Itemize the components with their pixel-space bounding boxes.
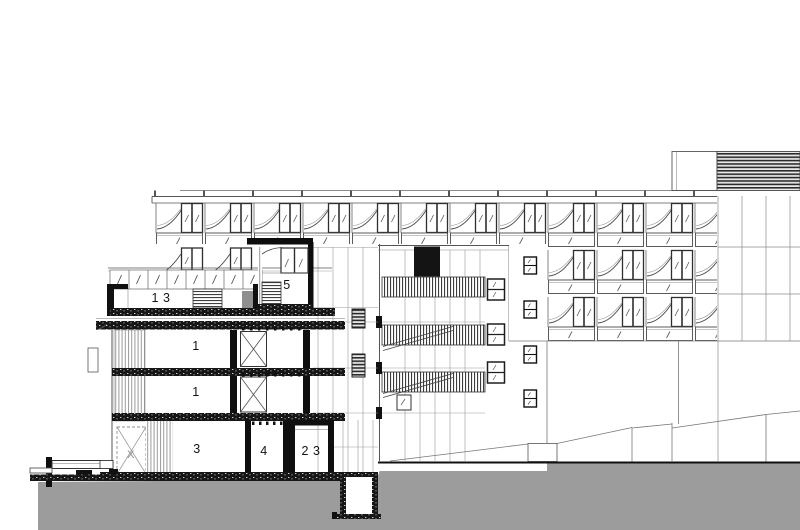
room-label-4: 4 [257,444,271,458]
room-label-23: 2 3 [295,444,327,458]
section-linework [0,0,800,530]
rooftop-louver-box [672,152,800,191]
room-label-x: X [124,448,138,462]
room-label-3: 3 [190,442,204,456]
room-label-5: 5 [280,278,294,292]
room-label-1-upper: 1 [189,339,203,353]
room-label-1-lower: 1 [189,385,203,399]
ground-line [378,462,800,464]
stair-landing-windows [488,279,505,383]
room-label-13: 1 3 [144,291,178,305]
building-section-canvas: 1 3 5 1 1 3 4 2 3 X [0,0,800,530]
